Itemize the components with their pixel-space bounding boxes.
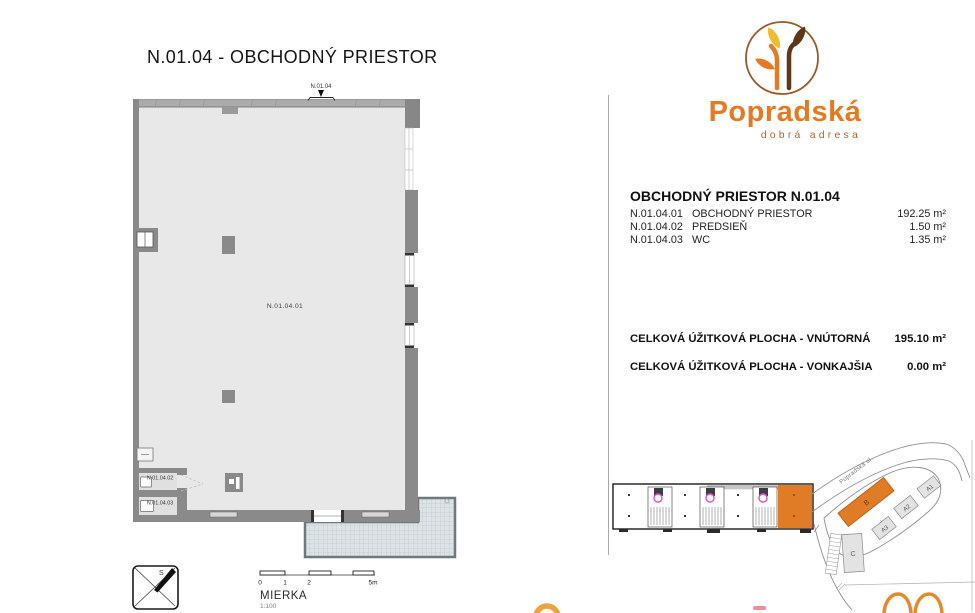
decor-ring-icon xyxy=(530,598,566,613)
plumbing-core xyxy=(225,473,243,492)
total-label: CELKOVÁ ÚŽITKOVÁ PLOCHA - VNÚTORNÁ xyxy=(630,333,895,345)
table-row: N.01.04.02 PREDSIEŇ 1.50 m² xyxy=(630,221,946,234)
room-label-main: N.01.04.01 xyxy=(267,303,303,310)
totals: CELKOVÁ ÚŽITKOVÁ PLOCHA - VNÚTORNÁ 195.1… xyxy=(630,333,946,389)
table-row: N.01.04.01 OBCHODNÝ PRIESTOR 192.25 m² xyxy=(630,208,946,221)
total-row-external: CELKOVÁ ÚŽITKOVÁ PLOCHA - VONKAJŠIA 0.00… xyxy=(630,361,946,373)
room-label-wc: N.01.04.03 xyxy=(147,501,173,507)
terrace-door xyxy=(311,510,344,522)
room-area: 1.50 m² xyxy=(909,221,946,234)
logo-plant-icon xyxy=(727,12,837,104)
entrance-label: N.01.04 xyxy=(310,84,332,90)
corner-block xyxy=(405,99,420,128)
site-map: A1 A2 A3 B C Popradská ul. xyxy=(812,438,975,613)
street-label: Popradská ul. xyxy=(839,456,875,486)
right-wall xyxy=(405,128,418,522)
building-a2: A2 xyxy=(894,495,919,518)
room-code: N.01.04.03 xyxy=(630,234,692,247)
unit-header: OBCHODNÝ PRIESTOR N.01.04 xyxy=(630,188,946,204)
total-value: 195.10 m² xyxy=(895,333,947,345)
total-label: CELKOVÁ ÚŽITKOVÁ PLOCHA - VONKAJŠIA xyxy=(630,361,907,373)
building-a1: A1 xyxy=(917,476,941,498)
table-row: N.01.04.03 WC 1.35 m² xyxy=(630,234,946,247)
scale-tick-5m: 5m xyxy=(368,580,377,587)
room-name: OBCHODNÝ PRIESTOR xyxy=(692,208,897,221)
scale-tick-2: 2 xyxy=(307,580,311,587)
room-area: 192.25 m² xyxy=(897,208,946,221)
wall-shaft xyxy=(133,228,158,252)
svg-text:C: C xyxy=(850,551,856,558)
logo-tagline: dobrá adresa xyxy=(650,129,861,141)
column xyxy=(222,236,235,254)
room-code: N.01.04.02 xyxy=(630,221,692,234)
scale-bar: 0 1 2 5m MIERKA 1:100 xyxy=(255,565,400,613)
scale-ratio: 1:100 xyxy=(260,603,277,610)
decor-dash xyxy=(753,606,766,610)
building-a3: A3 xyxy=(872,516,897,539)
logo-wordmark: Popradská xyxy=(650,96,920,129)
compass: S xyxy=(130,563,182,613)
window xyxy=(405,323,414,348)
entrance-marker: N.01.04 xyxy=(308,84,335,101)
total-row-internal: CELKOVÁ ÚŽITKOVÁ PLOCHA - VNÚTORNÁ 195.1… xyxy=(630,333,946,345)
room-name: PREDSIEŇ xyxy=(692,221,909,234)
room-name: WC xyxy=(692,234,909,247)
highlighted-unit xyxy=(778,485,812,528)
parking-strip xyxy=(825,533,841,574)
page-title: N.01.04 - OBCHODNÝ PRIESTOR xyxy=(147,47,438,68)
room-label-predsien: N.01.04.02 xyxy=(147,476,173,482)
total-value: 0.00 m² xyxy=(907,361,946,373)
building-c: C xyxy=(842,533,865,572)
room-code: N.01.04.01 xyxy=(630,208,692,221)
compass-north-label: S xyxy=(159,570,164,577)
unit-room-table: N.01.04.01 OBCHODNÝ PRIESTOR 192.25 m² N… xyxy=(630,208,946,248)
entrance-arrow-icon xyxy=(318,90,324,97)
floor-plan: N.01.04.02 N.01.04.03 N.01.04.01 N.01.04 xyxy=(125,80,465,565)
scale-tick-1: 1 xyxy=(283,580,287,587)
decor-arches-icon xyxy=(878,590,948,613)
column xyxy=(222,390,235,403)
building-overview-plan xyxy=(607,479,819,537)
meter-box xyxy=(137,448,153,461)
window xyxy=(405,253,414,287)
scale-tick-0: 0 xyxy=(258,580,262,587)
room-area: 1.35 m² xyxy=(909,234,946,247)
scale-label: MIERKA xyxy=(260,590,307,602)
